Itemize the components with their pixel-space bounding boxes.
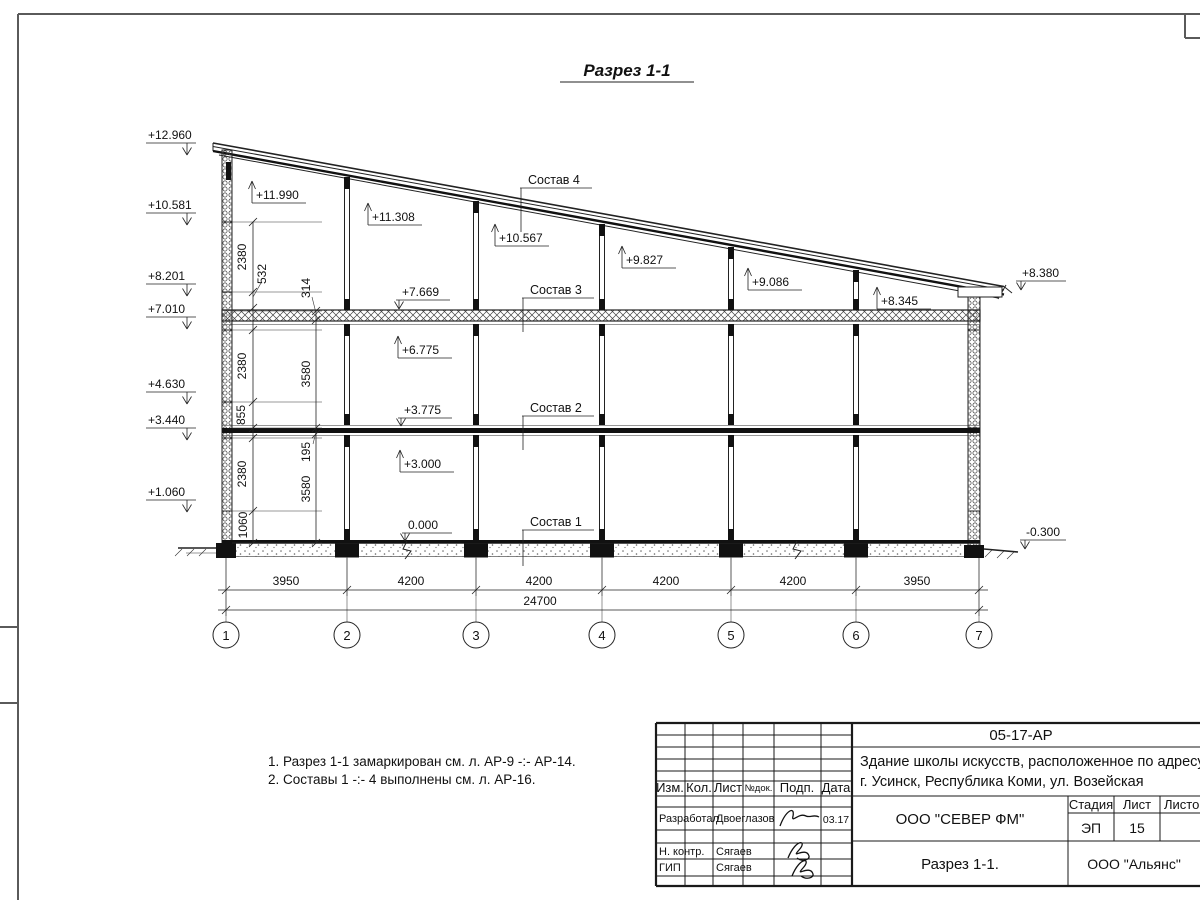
elevation-mark-label: +10.581 <box>148 198 192 212</box>
elevation-mark: +3.000 <box>397 450 455 472</box>
floor-slab-2 <box>222 426 980 436</box>
elevation-mark-label: +9.827 <box>626 253 663 267</box>
elevation-marks-left: +12.960 +10.581 +8.201 +7.010 +4.630 <box>146 128 196 512</box>
dim-label: 195 <box>299 442 313 462</box>
elevation-mark-label: +10.567 <box>499 231 543 245</box>
tb-col-ndok: №док. <box>745 783 773 794</box>
elevation-mark: +9.827 <box>619 246 677 268</box>
elevation-mark-label: +4.630 <box>148 377 185 391</box>
dim-label: 4200 <box>398 574 425 588</box>
tb-stage-header: Стадия <box>1069 797 1113 812</box>
notes: 1. Разрез 1-1 замаркирован см. л. АР-9 -… <box>268 754 576 787</box>
dim-label: 2380 <box>235 243 249 270</box>
dim-label: 1060 <box>236 511 250 538</box>
elevation-mark: +10.567 <box>492 224 550 246</box>
tb-sheets-header: Листов <box>1164 797 1200 812</box>
tb-date-developer: 03.17 <box>823 814 849 826</box>
elevation-marks-down: +7.669 +3.775 0.000 <box>395 285 453 541</box>
dim-label: 4200 <box>653 574 680 588</box>
dim-label: 855 <box>234 405 248 425</box>
tb-sheet-value: 15 <box>1129 820 1145 836</box>
elevation-mark: +11.990 <box>249 181 307 203</box>
elevation-mark-label: +8.201 <box>148 269 185 283</box>
bottom-dimensions: 3950 4200 4200 4200 4200 3950 24700 <box>218 558 988 616</box>
elevation-mark-label: +6.775 <box>402 343 439 357</box>
tb-col-izm: Изм. <box>656 780 684 795</box>
axis-number: 4 <box>598 628 605 643</box>
dim-label: 3580 <box>299 360 313 387</box>
tb-role-ncontrol: Н. контр. <box>659 846 704 858</box>
ground-slab <box>222 540 980 559</box>
dim-label: 4200 <box>526 574 553 588</box>
axis-number: 1 <box>222 628 229 643</box>
elevation-mark: +8.201 <box>146 269 196 296</box>
dim-label: 4200 <box>780 574 807 588</box>
elevation-mark-label: +7.669 <box>402 285 439 299</box>
drawing-title-label: Разрез 1-1 <box>583 61 670 80</box>
elevation-mark: +9.086 <box>745 268 803 290</box>
signature-developer <box>780 811 819 826</box>
left-wall <box>222 150 232 556</box>
note-line-1: 1. Разрез 1-1 замаркирован см. л. АР-9 -… <box>268 754 576 769</box>
tb-name-gip: Сягаев <box>716 862 752 874</box>
elevation-mark: +6.775 <box>395 336 453 358</box>
axis-number: 3 <box>472 628 479 643</box>
elevation-mark: +10.581 <box>146 198 196 225</box>
floor-slab-3 <box>222 310 980 325</box>
section-drawing-sheet: Разрез 1-1 <box>0 0 1200 900</box>
layer-label: Состав 3 <box>530 283 582 297</box>
tb-doc-code: 05-17-АР <box>989 727 1052 744</box>
elevation-mark: +4.630 <box>146 377 196 404</box>
elevation-mark-label: +9.086 <box>752 275 789 289</box>
roof <box>213 143 1012 299</box>
elevation-mark-label: +8.380 <box>1022 266 1059 280</box>
elevation-mark: +12.960 <box>146 128 196 155</box>
axis-number: 6 <box>852 628 859 643</box>
elevation-mark: +11.308 <box>365 203 423 225</box>
signature-ncontrol <box>788 843 809 861</box>
elevation-mark-label: +11.990 <box>256 188 299 202</box>
elevation-mark: +3.440 <box>146 413 196 440</box>
elevation-mark: +3.775 <box>397 403 453 426</box>
elevation-mark-label: 0.000 <box>408 518 438 532</box>
drawing-title: Разрез 1-1 <box>560 61 694 82</box>
tb-stage-value: ЭП <box>1081 820 1101 836</box>
elevation-marks-right: +8.380 -0.300 <box>1016 266 1066 549</box>
elevation-mark-label: +8.345 <box>881 294 918 308</box>
elevation-mark-label: +1.060 <box>148 485 185 499</box>
elevation-mark: +7.010 <box>146 302 196 329</box>
tb-name-ncontrol: Сягаев <box>716 846 752 858</box>
tb-role-developer: Разработал <box>659 813 719 825</box>
dim-label: 2380 <box>235 352 249 379</box>
axis-number: 5 <box>727 628 734 643</box>
tb-name-developer: Двоеглазов <box>716 813 775 825</box>
layer-label-group: Состав 4 <box>520 173 592 232</box>
dim-label: 2380 <box>235 460 249 487</box>
vertical-dim-chains: 2380 532 2380 855 2380 1060 314 3580 195… <box>232 218 322 547</box>
axis-bubbles: 1 2 3 4 5 6 7 <box>213 622 992 648</box>
axis-number: 7 <box>975 628 982 643</box>
tb-object-line1: Здание школы искусств, расположенное по … <box>860 754 1200 770</box>
tb-org: ООО "СЕВЕР ФМ" <box>896 811 1025 828</box>
note-line-2: 2. Составы 1 -:- 4 выполнены см. л. АР-1… <box>268 772 536 787</box>
columns <box>344 177 859 540</box>
dim-label: 3950 <box>904 574 931 588</box>
layer-label: Состав 4 <box>528 173 580 187</box>
tb-object-line2: г. Усинск, Республика Коми, ул. Возейска… <box>860 774 1144 790</box>
tb-sheet-header: Лист <box>1123 797 1151 812</box>
dim-label: 3580 <box>299 475 313 502</box>
elevation-mark-label: +12.960 <box>148 128 192 142</box>
elevation-mark-label: +3.000 <box>404 457 441 471</box>
tb-role-gip: ГИП <box>659 862 681 874</box>
elevation-mark: +8.345 <box>874 287 932 309</box>
elevation-mark: +1.060 <box>146 485 196 512</box>
tb-col-kol: Кол. <box>686 780 712 795</box>
elevation-mark: +8.380 <box>1016 266 1066 290</box>
elevation-mark-label: -0.300 <box>1026 525 1060 539</box>
axis-number: 2 <box>343 628 350 643</box>
dim-label: 532 <box>255 264 269 284</box>
elevation-mark: 0.000 <box>401 518 453 541</box>
layer-label: Состав 1 <box>530 515 582 529</box>
elevation-mark-label: +3.440 <box>148 413 185 427</box>
elevation-mark: +7.669 <box>395 285 451 309</box>
dim-label: 314 <box>299 278 313 298</box>
elevation-mark: -0.300 <box>1020 525 1066 549</box>
elevation-mark-label: +3.775 <box>404 403 441 417</box>
dim-label: 3950 <box>273 574 300 588</box>
dim-label-total: 24700 <box>523 594 557 608</box>
elevation-mark-label: +7.010 <box>148 302 185 316</box>
tb-col-list: Лист <box>714 780 742 795</box>
right-wall <box>958 287 1002 556</box>
tb-org2: ООО "Альянс" <box>1087 856 1181 872</box>
elevation-mark-label: +11.308 <box>372 210 415 224</box>
layer-label: Состав 2 <box>530 401 582 415</box>
title-block: Изм. Кол. Лист №док. Подп. Дата Разработ… <box>656 723 1200 886</box>
tb-col-podp: Подп. <box>780 780 815 795</box>
tb-col-data: Дата <box>822 780 852 795</box>
tb-doc-title: Разрез 1-1. <box>921 856 999 873</box>
